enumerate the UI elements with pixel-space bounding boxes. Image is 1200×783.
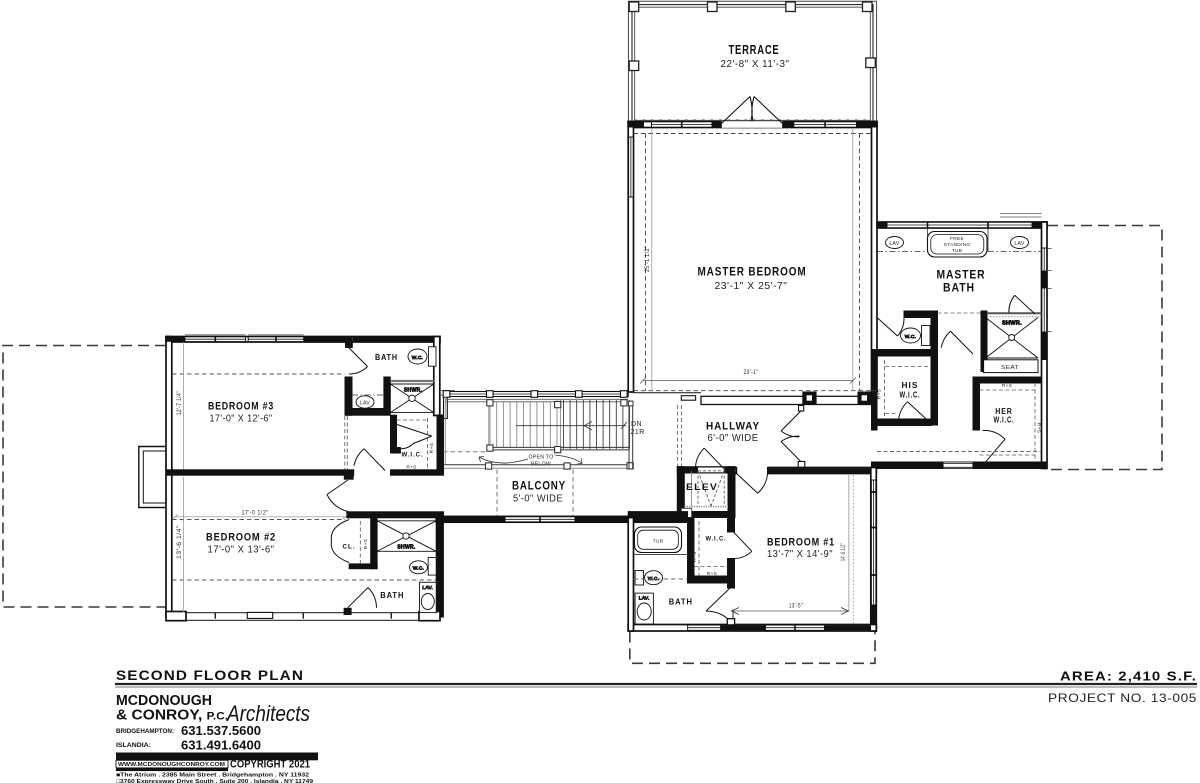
svg-text:& CONROY, P.C.: & CONROY, P.C. [116,708,228,724]
svg-text:WWW.MCDONOUGHCONROY.COM: WWW.MCDONOUGHCONROY.COM [118,762,225,768]
svg-text:SHWR.: SHWR. [397,544,415,550]
svg-text:R+S: R+S [363,539,369,549]
svg-text:LAV: LAV [360,400,370,406]
svg-text:R+S: R+S [1002,383,1012,389]
svg-text:TUB: TUB [952,248,963,254]
svg-text:HALLWAY: HALLWAY [706,421,760,433]
svg-text:23'-1": 23'-1" [744,369,759,376]
svg-text:LAV: LAV [889,241,900,247]
svg-text:17'-0" X 12'-6": 17'-0" X 12'-6" [210,413,273,425]
svg-text:BATH: BATH [669,598,693,607]
svg-text:BATH: BATH [943,283,975,295]
svg-text:17'-0 1/2": 17'-0 1/2" [242,510,269,517]
svg-text:R+S: R+S [1036,423,1042,433]
svg-text:PROJECT NO. 13-005: PROJECT NO. 13-005 [1048,693,1197,705]
svg-text:R+S: R+S [707,571,717,577]
svg-text:MASTER: MASTER [937,270,986,282]
svg-text:6'-0" WIDE: 6'-0" WIDE [708,433,759,444]
svg-text:22'-8" X 11'-3": 22'-8" X 11'-3" [721,59,790,70]
svg-text:23'-1" X 25'-7": 23'-1" X 25'-7" [715,280,788,292]
svg-text:12'-7 1/4": 12'-7 1/4" [176,391,183,416]
svg-text:BATH: BATH [375,353,398,362]
svg-text:HIS: HIS [902,381,919,390]
svg-text:STANDING: STANDING [944,242,971,248]
svg-text:□3760 Expressway Drive South: □3760 Expressway Drive South . Suite 200… [116,779,314,783]
svg-text:W.I.C.: W.I.C. [994,416,1015,425]
svg-text:BEDROOM #2: BEDROOM #2 [206,532,276,544]
svg-text:BALCONY: BALCONY [512,481,566,493]
svg-text:W.I.C.: W.I.C. [706,536,727,543]
svg-text:BEDROOM #1: BEDROOM #1 [767,537,835,549]
svg-text:W.C.: W.C. [412,355,424,361]
svg-text:SHWR.: SHWR. [404,388,422,394]
svg-text:LAV.: LAV. [639,596,650,602]
svg-text:ISLANDIA:: ISLANDIA: [116,742,151,749]
svg-text:OPEN TO: OPEN TO [529,455,554,461]
svg-text:Architects: Architects [225,701,310,726]
svg-text:25'-1 1/2": 25'-1 1/2" [644,246,651,272]
svg-text:CL.: CL. [343,544,356,551]
svg-text:BRIDGEHAMPTON:: BRIDGEHAMPTON: [116,728,174,735]
svg-text:■The Atrium . 2385 Main Stre: ■The Atrium . 2385 Main Street . Bridgeh… [116,773,309,779]
svg-text:R+S: R+S [877,389,883,399]
svg-text:13'-6 1/4": 13'-6 1/4" [176,525,183,559]
svg-text:R+S: R+S [692,551,698,561]
svg-text:14'-6 1/2": 14'-6 1/2" [841,543,847,561]
svg-text:SEAT: SEAT [1001,365,1019,371]
svg-text:TUB: TUB [653,538,664,544]
svg-text:TERRACE: TERRACE [729,43,780,57]
svg-text:BEDROOM #3: BEDROOM #3 [208,401,274,413]
svg-text:BATH: BATH [380,591,404,600]
svg-text:AREA: 2,410 S.F.: AREA: 2,410 S.F. [1060,669,1197,684]
svg-text:LAV: LAV [1014,241,1025,247]
svg-text:LAV.: LAV. [422,585,433,591]
svg-text:R+S: R+S [429,443,435,453]
svg-text:W.I.C.: W.I.C. [900,391,921,400]
svg-text:13'-7" X 14'-9": 13'-7" X 14'-9" [767,548,833,560]
svg-text:W.C.: W.C. [905,334,917,340]
svg-text:SECOND FLOOR PLAN: SECOND FLOOR PLAN [116,668,304,683]
svg-text:ELEV: ELEV [686,482,718,492]
svg-text:COPYRIGHT 2021: COPYRIGHT 2021 [230,759,310,771]
svg-text:FREE: FREE [950,236,964,242]
svg-text:5'-0" WIDE: 5'-0" WIDE [513,494,563,505]
svg-text:SHWR.: SHWR. [1002,321,1022,327]
svg-text:MASTER BEDROOM: MASTER BEDROOM [698,267,807,279]
svg-text:R+S: R+S [406,465,416,471]
svg-text:631.491.6400: 631.491.6400 [181,739,261,753]
svg-text:631.537.5600: 631.537.5600 [181,724,261,738]
svg-text:13'-5": 13'-5" [789,604,803,610]
svg-text:W.I.C.: W.I.C. [402,452,424,459]
svg-text:W.C.: W.C. [413,566,425,572]
svg-text:17'-0" X 13'-6": 17'-0" X 13'-6" [208,544,275,556]
